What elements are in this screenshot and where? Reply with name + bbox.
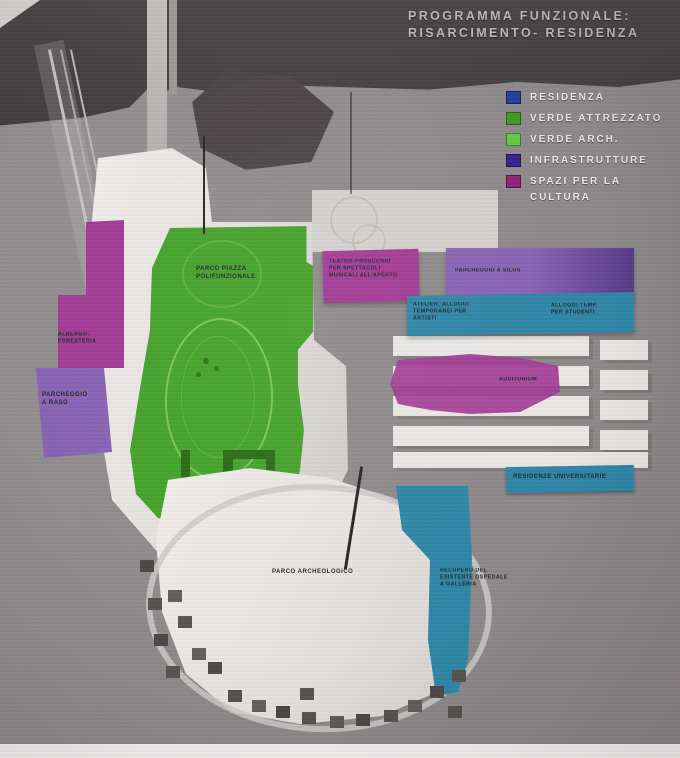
zone-label-parco-archeologico: PARCO ARCHEOLOGICO [272, 569, 353, 577]
zone-label-parcheggio-raso: PARCHEGGIO A RASO [42, 392, 88, 408]
tree-dot [203, 358, 209, 364]
tree-dot [196, 372, 201, 377]
building-bar [600, 400, 648, 420]
masterplan-photo: ALBERGO-FORESTERIA PARCHEGGIO A RASO PAR… [0, 0, 680, 758]
legend-label: SPAZI PER LA CULTURA [530, 174, 621, 206]
zone-parcheggio-a-raso [34, 366, 116, 460]
legend-label: VERDE ATTREZZATO [530, 111, 662, 127]
legend-swatch-verde-arch [506, 133, 521, 146]
legend: RESIDENZA VERDE ATTREZZATO VERDE ARCH. I… [506, 90, 662, 211]
legend-item-verde-arch: VERDE ARCH. [506, 132, 662, 148]
zone-label-teatro: TEATRO-PROSCENIO PER SPETTACOLI MUSICALI… [329, 259, 398, 280]
existing-buildings-cluster [0, 0, 14, 12]
building-bar [393, 336, 589, 356]
legend-item-verde-attrezzato: VERDE ATTREZZATO [506, 111, 662, 127]
legend-item-residenza: RESIDENZA [506, 90, 662, 106]
building-bar [393, 426, 589, 446]
tree-dot [214, 366, 219, 371]
zone-label-recupero: RECUPERO DEL ESISTENTE OSPEDALE A GALLER… [440, 568, 508, 589]
zone-label-alloggi-studenti: ALLOGGI TEMP. PER STUDENTI [551, 303, 598, 317]
page-title: PROGRAMMA FUNZIONALE: RISARCIMENTO- RESI… [408, 8, 639, 42]
zone-label-atelier: ATELIER, ALLOGGI TEMPORANEI PER ARTISTI [413, 302, 469, 323]
legend-swatch-residenza [506, 91, 521, 104]
zone-label-albergo: ALBERGO-FORESTERIA [58, 332, 111, 346]
zone-label-residenze: RESIDENZE UNIVERSITARIE [513, 474, 606, 482]
axis-line [203, 136, 205, 234]
building-bar [600, 430, 648, 450]
zone-label-auditorium: AUDITORIUM [499, 377, 537, 384]
legend-label: RESIDENZA [530, 90, 605, 106]
building-bar [600, 340, 648, 360]
title-line2: RISARCIMENTO- RESIDENZA [408, 26, 639, 40]
building-bar [600, 370, 648, 390]
legend-label: VERDE ARCH. [530, 132, 619, 148]
zone-label-parco-piazza: PARCO PIAZZA POLIFUNZIONALE [196, 266, 256, 282]
legend-swatch-infrastrutture [506, 154, 521, 167]
legend-item-spazi-cultura: SPAZI PER LA CULTURA [506, 174, 662, 206]
title-line1: PROGRAMMA FUNZIONALE: [408, 9, 631, 23]
legend-swatch-spazi-cultura [506, 175, 521, 188]
legend-item-infrastrutture: INFRASTRUTTURE [506, 153, 662, 169]
bottom-white-strip [0, 744, 680, 758]
legend-label: INFRASTRUTTURE [530, 153, 648, 169]
axis-line [350, 92, 352, 194]
sports-track-inner-outline [181, 336, 255, 458]
zone-label-parcheggio-silos: PARCHEGGIO A SILOS [455, 268, 521, 275]
vertical-road-secondary [169, 0, 177, 94]
legend-swatch-verde-attrezzato [506, 112, 521, 125]
